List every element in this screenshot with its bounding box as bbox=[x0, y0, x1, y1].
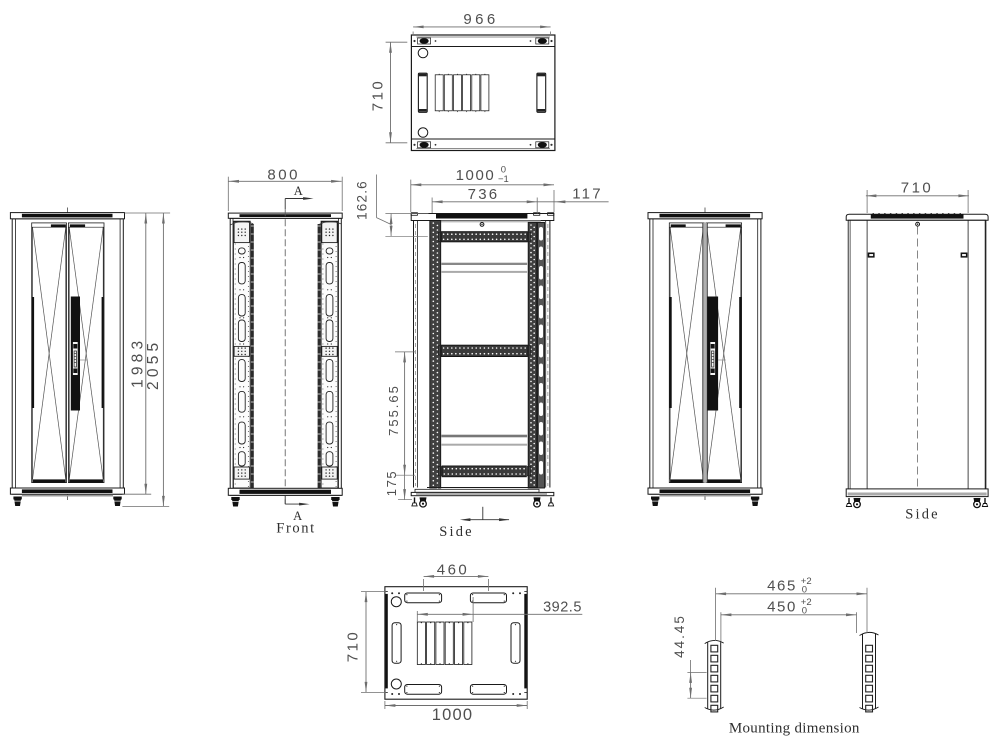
svg-text:710: 710 bbox=[345, 630, 362, 663]
svg-text:1000: 1000 bbox=[456, 167, 496, 184]
svg-text:755.65: 755.65 bbox=[386, 384, 401, 436]
svg-text:800: 800 bbox=[267, 166, 300, 183]
svg-text:A: A bbox=[294, 184, 303, 198]
svg-text:44.45: 44.45 bbox=[672, 614, 687, 658]
svg-text:450: 450 bbox=[767, 599, 797, 616]
svg-text:Front: Front bbox=[276, 520, 315, 536]
svg-text:175: 175 bbox=[384, 470, 399, 497]
svg-text:966: 966 bbox=[463, 11, 498, 28]
svg-text:0: 0 bbox=[802, 606, 807, 617]
svg-text:460: 460 bbox=[437, 562, 470, 579]
svg-text:710: 710 bbox=[370, 79, 387, 112]
svg-text:117: 117 bbox=[572, 186, 603, 203]
svg-text:392.5: 392.5 bbox=[543, 600, 582, 616]
svg-text:−1: −1 bbox=[498, 174, 509, 185]
svg-text:2055: 2055 bbox=[145, 339, 162, 390]
svg-text:465: 465 bbox=[767, 578, 797, 595]
svg-text:1983: 1983 bbox=[130, 337, 147, 388]
svg-text:736: 736 bbox=[468, 186, 500, 203]
svg-text:Side: Side bbox=[439, 524, 474, 540]
svg-text:0: 0 bbox=[802, 585, 807, 596]
svg-text:710: 710 bbox=[901, 180, 934, 197]
svg-text:1000: 1000 bbox=[432, 706, 474, 724]
svg-text:Side: Side bbox=[905, 507, 940, 523]
svg-text:Mounting dimension: Mounting dimension bbox=[729, 721, 860, 737]
svg-text:162.6: 162.6 bbox=[354, 180, 369, 220]
